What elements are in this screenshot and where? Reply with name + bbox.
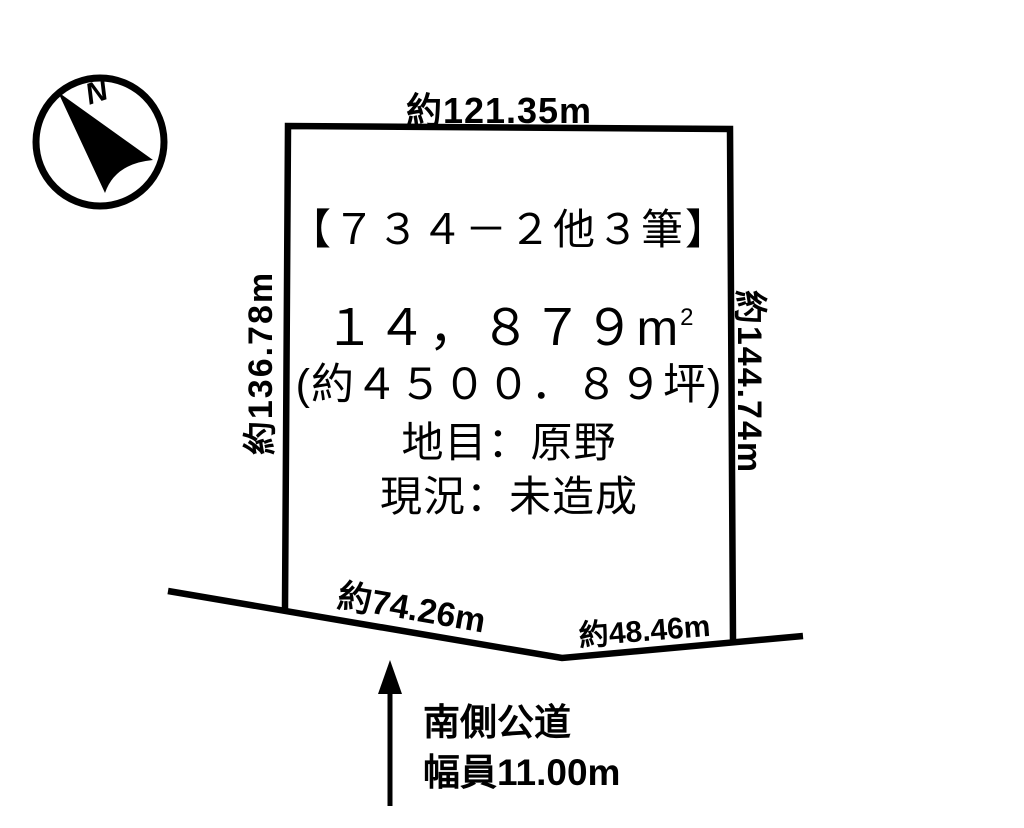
parcel-area-unit: m [636, 300, 680, 356]
parcel-title: 【７３４－２他３筆】 [288, 196, 730, 257]
parcel-land-category: 地目：原野 [288, 409, 730, 470]
road-arrow-head [378, 660, 402, 694]
dimension-right: 約144.74m [737, 262, 777, 502]
parcel-area-value: １４，８７９ [324, 300, 636, 356]
road-annotation: 南側公道 幅員11.00m [423, 698, 620, 798]
parcel-area-exponent: 2 [680, 304, 693, 331]
land-plot-diagram: N 約121.35m 約136.78m 約144.74m 約74.26m 約48… [0, 0, 1024, 828]
parcel-area-tsubo: (約４５００．８９坪) [288, 350, 730, 412]
parcel-current-state: 現況：未造成 [288, 463, 730, 524]
road-name: 南側公道 [423, 698, 620, 748]
road-arrow-icon [378, 660, 402, 806]
dimension-left: 約136.78m [233, 243, 273, 483]
dimension-top: 約121.35m [278, 82, 720, 134]
road-width: 幅員11.00m [423, 748, 620, 798]
